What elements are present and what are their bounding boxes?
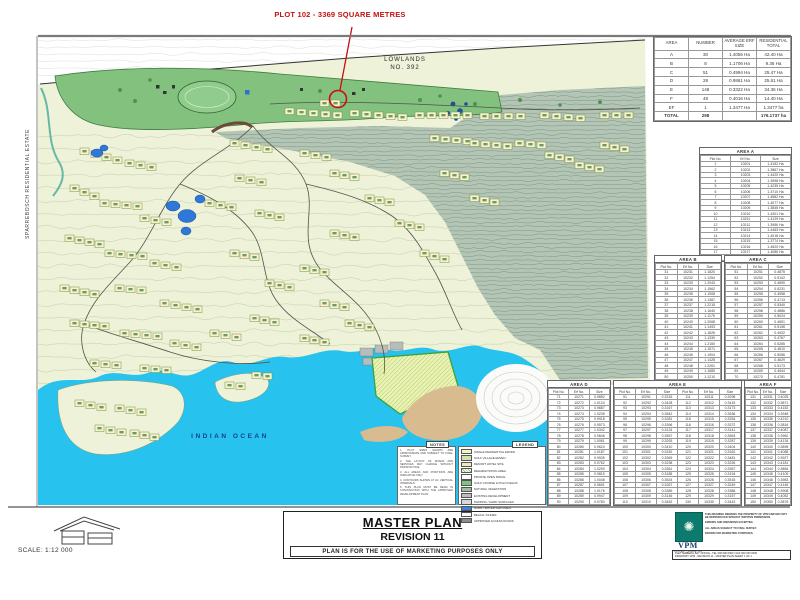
plot-number-chip	[376, 114, 380, 116]
table-cell: 10270	[747, 374, 769, 380]
plot-number-chip	[453, 114, 457, 116]
table-row: 146103460.3983	[746, 477, 791, 483]
table-row: 31102311.1820	[656, 269, 721, 275]
plot-number-chip	[107, 252, 111, 254]
plot-number-chip	[332, 304, 336, 306]
table-row: 15102151.3774 Ha	[701, 238, 791, 244]
plot-number-chip	[252, 317, 256, 319]
plot-number-chip	[313, 154, 317, 156]
area-a-table: AREA APlot No.Erf No.Size1102011.4152 Ha…	[699, 147, 792, 262]
plot-number-chip	[612, 146, 616, 148]
plot-number-chip	[397, 222, 401, 224]
table-row: 12102121.3956 Ha	[701, 222, 791, 228]
table-row: 8102081.4077 Ha	[701, 200, 791, 206]
plot-number-chip	[259, 181, 263, 183]
plot-number-chip	[207, 202, 211, 204]
plot-number-chip	[82, 191, 86, 193]
plot-number-chip	[82, 323, 86, 325]
table-cell: 42.40 Ha	[757, 50, 791, 59]
table-cell: 0.3962	[776, 433, 791, 439]
table-row: 76102760.9573	[549, 422, 610, 428]
table-row: 44102441.2150	[656, 341, 721, 347]
legend-item: PRIVATE OPEN SPACE	[461, 474, 543, 479]
area-b-table: AREA BPlot No.Erf No.Size31102311.182032…	[654, 255, 722, 381]
plot-number-chip	[472, 142, 476, 144]
plot-number-chip	[128, 409, 132, 411]
plot-number-chip	[227, 384, 231, 386]
note-item: 1. PLOT SIZES SHOWN ARE APPROXIMATE AND …	[400, 449, 453, 458]
legend-item: RESORT HOTEL SITE	[461, 462, 543, 467]
table-row: 40102401.2068	[656, 319, 721, 325]
lowlands-label: LOWLANDS NO. 392	[365, 56, 445, 72]
table-row: 63102630.4767	[726, 335, 791, 341]
table-row: 2102021.3867 Ha	[701, 167, 791, 173]
vpm-contact-line2: DRAWN BY VPM - REVISION 11 - MASTER PLAN…	[675, 555, 788, 558]
table-cell: TOTAL	[655, 112, 689, 121]
legend-swatch	[461, 455, 472, 460]
plot-number-chip	[528, 143, 532, 145]
plot-number-chip	[472, 197, 476, 199]
legend-swatch	[461, 480, 472, 485]
table-cell: 1.1706 Ha	[723, 59, 757, 68]
plot-number-chip	[252, 256, 256, 258]
table-row: 56102560.4713	[726, 297, 791, 303]
plot-number-chip	[539, 144, 543, 146]
table-row: 131103310.4025	[746, 394, 791, 400]
table-row: 110103100.3452130103300.3443	[615, 499, 741, 505]
column-header: AVERAGE ERF SIZE	[723, 38, 757, 51]
plot-number-chip	[352, 236, 356, 238]
vpm-line: DRAWN FOR MARKETING PURPOSES.	[705, 532, 791, 535]
estate-name-vertical: SPARREBOSCH RESIDENTIAL ESTATE	[14, 80, 26, 250]
legend-item: EXISTING DEVELOPMENT	[461, 493, 543, 498]
plot-number-chip	[387, 201, 391, 203]
plot-number-chip	[164, 369, 168, 371]
plot-number-chip	[195, 308, 199, 310]
table-cell: 0.4068	[776, 449, 791, 455]
table-cell: 0.4181	[776, 460, 791, 466]
plot-number-chip	[242, 254, 246, 256]
table-row: 1102011.4152 Ha	[701, 161, 791, 167]
table-row: 79102791.0061	[549, 438, 610, 444]
table-row: 32102321.1254	[656, 275, 721, 281]
table-row: 54102540.5231	[726, 286, 791, 292]
plot-number-chip	[542, 114, 546, 116]
plot-number-chip	[494, 144, 498, 146]
table-row: 84102841.0293	[549, 466, 610, 472]
plot-number-chip	[118, 253, 122, 255]
plot-number-chip	[72, 322, 76, 324]
plot-number-chip	[454, 139, 458, 141]
table-cell: 0.4152	[776, 405, 791, 411]
table-row: 71102710.9852	[549, 394, 610, 400]
plot-number-chip	[587, 166, 591, 168]
plot-number-chip	[254, 146, 258, 148]
table-cell: 0.4016 Ha	[723, 94, 757, 103]
table-row: 138103380.3962	[746, 433, 791, 439]
column-header: AREA	[655, 38, 689, 51]
plot-number-chip	[257, 212, 261, 214]
table-row: 11102111.4129 Ha	[701, 216, 791, 222]
plot-number-chip	[248, 179, 252, 181]
table-row: 33102331.2043	[656, 280, 721, 286]
legend-item: SINGLE RESIDENTIAL ERVEN	[461, 449, 543, 454]
plot-number-chip	[422, 252, 426, 254]
area-summary-table: AREANUMBERAVERAGE ERF SIZERESIDENTIAL TO…	[653, 36, 792, 122]
plot-number-chip	[265, 148, 269, 150]
legend-item: NATURAL VEGETATION	[461, 487, 543, 492]
table-cell: 0.3908	[776, 488, 791, 494]
notes-title: NOTES	[426, 441, 449, 448]
plot-number-chip	[155, 335, 159, 337]
plot-number-chip	[97, 243, 101, 245]
table-row: 88102881.0176	[549, 488, 610, 494]
plot-number-chip	[132, 432, 136, 434]
table-row: 67102670.4629	[726, 357, 791, 363]
table-row: 51102510.4875	[726, 269, 791, 275]
plot-number-chip	[342, 174, 346, 176]
plot-number-chip	[104, 156, 108, 158]
table-cell: 0.3927	[776, 455, 791, 461]
plot-number-chip	[184, 306, 188, 308]
plot-number-chip	[162, 302, 166, 304]
plot-number-chip	[153, 219, 157, 221]
table-cell: 51	[689, 68, 723, 77]
plot-number-chip	[352, 176, 356, 178]
table-cell: 1.4056 Ha	[723, 50, 757, 59]
table-row: 62102620.4932	[726, 330, 791, 336]
table-cell: 48	[689, 94, 723, 103]
table-cell: 1	[689, 103, 723, 112]
table-row: 82102820.9935	[549, 455, 610, 461]
plot-number-chip	[322, 271, 326, 273]
table-row: 140103400.3895	[746, 444, 791, 450]
plot-number-chip	[77, 402, 81, 404]
table-row: 73102730.9687	[549, 405, 610, 411]
plot-number-chip	[442, 258, 446, 260]
table-row: 9102091.3845 Ha	[701, 205, 791, 211]
table-row: TOTAL298176.1737 ha	[655, 112, 791, 121]
plot-number-chip	[518, 115, 522, 117]
plot-number-chip	[367, 197, 371, 199]
plot-number-chip	[144, 334, 148, 336]
legend-swatch	[461, 474, 472, 479]
legend-item: GOLF COURSE & POLO FIELDS	[461, 480, 543, 485]
table-row: 133103330.4152	[746, 405, 791, 411]
plot-number-chip	[77, 239, 81, 241]
plot-number-chip	[87, 241, 91, 243]
plot-number-chip	[417, 226, 421, 228]
table-row: 68102680.5173	[726, 363, 791, 369]
legend-swatch	[461, 493, 472, 498]
table-row: 134103340.3948	[746, 411, 791, 417]
plot-number-chip	[347, 322, 351, 324]
plot-number-chip	[62, 287, 66, 289]
table-title: AREA F	[745, 381, 791, 388]
table-cell: 0.3854	[776, 466, 791, 472]
plot-number-chip	[364, 113, 368, 115]
plot-number-chip	[505, 145, 509, 147]
plot-number-chip	[82, 291, 86, 293]
legend-swatch	[461, 499, 472, 504]
table-cell: 10290	[569, 499, 589, 505]
lowlands-line1: LOWLANDS	[365, 56, 445, 64]
plot-number-chip	[243, 144, 247, 146]
revision-label: REVISION 11	[284, 531, 541, 543]
note-item: 3. ALL AREAS AND POSITIONS ARE INDICATIV…	[400, 471, 453, 477]
table-cell: 0.3452	[657, 499, 678, 505]
vpm-name: VPM	[675, 541, 701, 550]
plot-number-chip	[567, 158, 571, 160]
table-cell: 10250	[677, 374, 699, 380]
table-row: 64102640.5285	[726, 341, 791, 347]
table-row: F480.4016 Ha14.40 Ha	[655, 94, 791, 103]
table-cell: 0.4781	[769, 374, 791, 380]
plot-number-chip	[322, 102, 326, 104]
table-cell: 1.3477 ha	[757, 103, 791, 112]
legend-swatch	[461, 462, 472, 467]
pool	[245, 90, 250, 95]
plot-number-chip	[462, 176, 466, 178]
plot-number-chip	[465, 114, 469, 116]
plot-number-chip	[172, 342, 176, 344]
table-cell: 0.3443	[720, 499, 741, 505]
plot-number-chip	[335, 114, 339, 116]
table-row: 142103420.3927	[746, 455, 791, 461]
plot-number-chip	[400, 116, 404, 118]
legend-label: REHABILITATION AREA	[474, 469, 506, 473]
table-cell: 0.3895	[776, 444, 791, 450]
table-cell: 28	[689, 76, 723, 85]
plot-number-chip	[265, 375, 269, 377]
plot-number-chip	[352, 112, 356, 114]
dune-island	[476, 364, 556, 432]
table-row: 41102411.1493	[656, 324, 721, 330]
table-row: 34102341.1562	[656, 286, 721, 292]
table-cell: EF	[655, 103, 689, 112]
note-item: 5. THIS PLAN MUST BE READ IN CONJUNCTION…	[400, 486, 453, 495]
column-header: NUMBER	[689, 38, 723, 51]
plot-number-chip	[287, 286, 291, 288]
table-cell: 1.1210	[699, 374, 721, 380]
legend-box: SINGLE RESIDENTIAL ERVENGOLF VILLAGE ERV…	[458, 446, 546, 505]
plot-number-chip	[212, 332, 216, 334]
plot-number-chip	[429, 114, 433, 116]
table-row: 50102501.1210	[656, 374, 721, 380]
vpm-line: ALL AREAS SUBJECT TO FINAL SURVEY.	[705, 527, 791, 530]
plot-number-chip	[237, 177, 241, 179]
plot-number-chip	[254, 374, 258, 376]
table-row: 83102830.9762	[549, 460, 610, 466]
table-cell: 0.4210	[776, 416, 791, 422]
table-row: C510.4994 Ha25.47 Ha	[655, 68, 791, 77]
table-cell: 1.3477 Ha	[723, 103, 757, 112]
plot-number-chip	[312, 269, 316, 271]
legend-label: GOLF COURSE & POLO FIELDS	[474, 481, 518, 485]
table-row: 135103350.4210	[746, 416, 791, 422]
table-row: 6102061.3710 Ha	[701, 189, 791, 195]
table-row: 59102590.5024	[726, 313, 791, 319]
plot-number-chip	[287, 110, 291, 112]
plot-number-chip	[614, 114, 618, 116]
plot-number-chip	[407, 224, 411, 226]
table-row: 136103360.3816	[746, 422, 791, 428]
legend-title: LEGEND	[512, 441, 538, 448]
plot-number-chip	[452, 174, 456, 176]
table-row: 143103430.4181	[746, 460, 791, 466]
plot-number-chip	[357, 324, 361, 326]
legend-swatch	[461, 468, 472, 473]
plot-number-chip	[117, 287, 121, 289]
table-cell: 298	[689, 112, 723, 121]
plot-number-chip	[92, 195, 96, 197]
column-header: RESIDENTIAL TOTAL	[757, 38, 791, 51]
plot-number-chip	[223, 334, 227, 336]
legend-label: EXISTING DEVELOPMENT	[474, 494, 510, 498]
plot-number-chip	[92, 324, 96, 326]
plot-number-chip	[164, 221, 168, 223]
plot-number-chip	[139, 289, 143, 291]
table-cell: 0.4109	[776, 471, 791, 477]
table-row: 65102650.4810	[726, 346, 791, 352]
table-row: 89102890.9947	[549, 493, 610, 499]
plot-number-chip	[302, 152, 306, 154]
plot-number-chip	[557, 156, 561, 158]
table-row: 53102530.4690	[726, 280, 791, 286]
table-cell: F	[655, 94, 689, 103]
table-row: 72102721.0124	[549, 400, 610, 406]
masterplan-sheet: PLOT 102 - 3369 SQUARE METRES LOWLANDS N…	[0, 0, 800, 600]
plot-number-chip	[332, 232, 336, 234]
table-row: 42102421.1826	[656, 330, 721, 336]
plot-number-chip	[108, 429, 112, 431]
plot-number-chip	[602, 114, 606, 116]
disclaimer: PLAN IS FOR THE USE OF MARKETING PURPOSE…	[290, 546, 535, 557]
plot-number-chip	[312, 339, 316, 341]
plot-number-chip	[115, 159, 119, 161]
plot-number-chip	[322, 341, 326, 343]
plot-number-chip	[103, 363, 107, 365]
plot-number-chip	[597, 168, 601, 170]
plot-number-chip	[267, 282, 271, 284]
plot-number-chip	[99, 406, 103, 408]
table-row: 55102550.4958	[726, 291, 791, 297]
plot-number-chip	[323, 113, 327, 115]
table-cell: 50	[656, 374, 678, 380]
table-row: 90102900.9783	[549, 499, 610, 505]
table-cell: 0.3816	[776, 422, 791, 428]
plot-number-chip	[626, 114, 630, 116]
plot-number-chip	[566, 116, 570, 118]
plot-number-chip	[152, 262, 156, 264]
plot-number-chip	[92, 362, 96, 364]
table-cell: 0.9861 Ha	[723, 76, 757, 85]
plot-number-chip	[299, 111, 303, 113]
plot-number-chip	[322, 302, 326, 304]
table-row: 35102351.1908	[656, 291, 721, 297]
table-row: 38102381.1640	[656, 308, 721, 314]
lowlands-line2: NO. 392	[365, 64, 445, 72]
plot-number-chip	[311, 112, 315, 114]
table-cell: 0.3876	[776, 499, 791, 505]
table-row: 81102811.0187	[549, 449, 610, 455]
plot-number-chip	[129, 254, 133, 256]
plot-number-chip	[142, 434, 146, 436]
area-e-table: AREA EPlot No.Erf No.SizePlot No.Erf No.…	[613, 380, 742, 506]
table-row: B81.1706 Ha9.36 Ha	[655, 59, 791, 68]
plot-number-chip	[97, 427, 101, 429]
plot-number-chip	[92, 293, 96, 295]
table-cell: 0.3948	[776, 411, 791, 417]
table-cell: E	[655, 85, 689, 94]
plot-number-chip	[113, 203, 117, 205]
vpm-logo-icon: ✺	[675, 512, 703, 542]
table-row: 77102771.0342	[549, 427, 610, 433]
table-row: 5102051.4235 Ha	[701, 183, 791, 189]
table-row: 137103370.4087	[746, 427, 791, 433]
plot-number-chip	[492, 201, 496, 203]
table-row: 46102461.1904	[656, 352, 721, 358]
legend-label: PARKING / HARD SURFACES	[474, 500, 514, 504]
plot-number-chip	[554, 115, 558, 117]
table-row: 145103450.4109	[746, 471, 791, 477]
table-cell: 130	[678, 499, 699, 505]
table-row: 3102031.4420 Ha	[701, 172, 791, 178]
table-row: 80102800.9624	[549, 444, 610, 450]
plot-number-chip	[494, 115, 498, 117]
plot-number-chip	[277, 284, 281, 286]
table-row: 139103390.4134	[746, 438, 791, 444]
table-row: 52102520.5102	[726, 275, 791, 281]
table-cell: 25.47 Ha	[757, 68, 791, 77]
area-f-table: AREA FPlot No.Erf No.Size131103310.40251…	[744, 380, 792, 506]
plot-number-chip	[417, 114, 421, 116]
plot-number-chip	[342, 234, 346, 236]
table-row: E1480.3322 Ha34.36 Ha	[655, 85, 791, 94]
plot-number-chip	[432, 137, 436, 139]
table-row: 4102041.3998 Ha	[701, 178, 791, 184]
plot-callout: PLOT 102 - 3369 SQUARE METRES	[200, 10, 480, 19]
table-cell: 10330	[699, 499, 720, 505]
estate-name-text: SPARREBOSCH RESIDENTIAL ESTATE	[25, 79, 31, 239]
plot-number-chip	[67, 237, 71, 239]
plot-number-chip	[272, 321, 276, 323]
table-row: 74102741.0235	[549, 411, 610, 417]
table-row: 132103320.3871	[746, 400, 791, 406]
table-row: 150103500.3876	[746, 499, 791, 505]
table-cell: 14.40 Ha	[757, 94, 791, 103]
legend-label: NATURAL VEGETATION	[474, 487, 506, 491]
table-cell: 148	[689, 85, 723, 94]
table-row: 87102870.9691	[549, 482, 610, 488]
plot-number-chip	[302, 267, 306, 269]
legend-label: SINGLE RESIDENTIAL ERVEN	[474, 450, 515, 454]
table-cell: 70	[726, 374, 748, 380]
table-cell: 9.36 Ha	[757, 59, 791, 68]
plot-number-chip	[232, 142, 236, 144]
plot-number-chip	[72, 187, 76, 189]
plot-number-chip	[377, 199, 381, 201]
table-row: 39102391.1175	[656, 313, 721, 319]
plot-number-chip	[465, 140, 469, 142]
plot-number-chip	[332, 172, 336, 174]
plot-number-chip	[442, 172, 446, 174]
vpm-contact-strip: PLETTENBERG BAY OFFICE - TEL 000 000 000…	[672, 550, 791, 560]
table-row: 69102690.4944	[726, 368, 791, 374]
plot-number-chip	[139, 411, 143, 413]
table-row: 57102570.5340	[726, 302, 791, 308]
plot-number-chip	[483, 143, 487, 145]
